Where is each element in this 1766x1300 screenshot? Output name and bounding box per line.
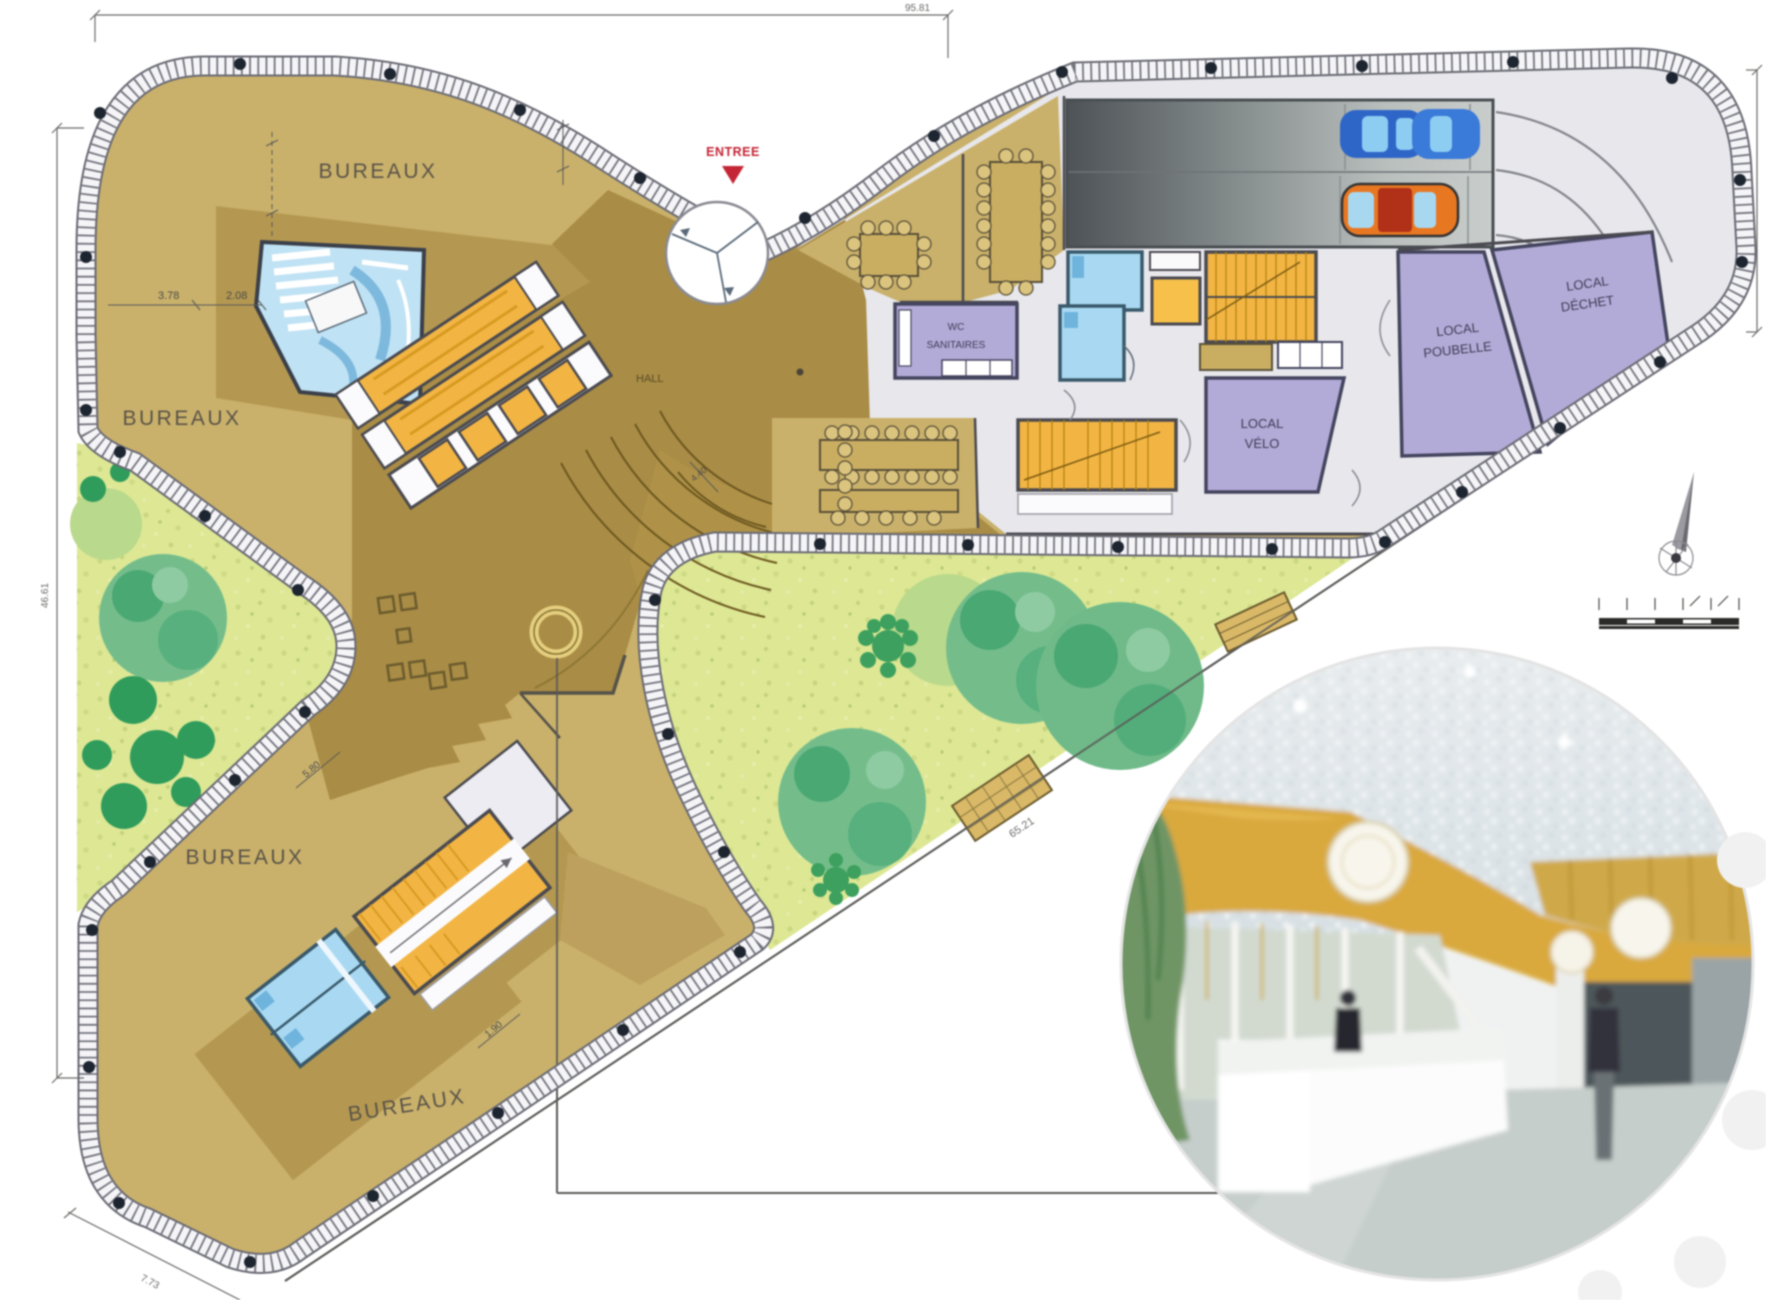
svg-text:BUREAUX: BUREAUX [122, 407, 241, 430]
svg-text:2.08: 2.08 [226, 290, 247, 302]
svg-text:LOCAL: LOCAL [1241, 416, 1284, 431]
svg-text:WC: WC [948, 322, 965, 333]
svg-text:95.81: 95.81 [905, 3, 930, 14]
svg-text:SANITAIRES: SANITAIRES [927, 340, 986, 351]
svg-text:VÉLO: VÉLO [1245, 436, 1280, 451]
svg-text:46.61: 46.61 [40, 583, 51, 608]
svg-text:BUREAUX: BUREAUX [185, 846, 304, 869]
svg-text:3.78: 3.78 [158, 290, 179, 302]
svg-text:ENTREE: ENTREE [706, 145, 760, 159]
svg-text:HALL: HALL [636, 373, 664, 385]
svg-text:BUREAUX: BUREAUX [318, 160, 437, 183]
